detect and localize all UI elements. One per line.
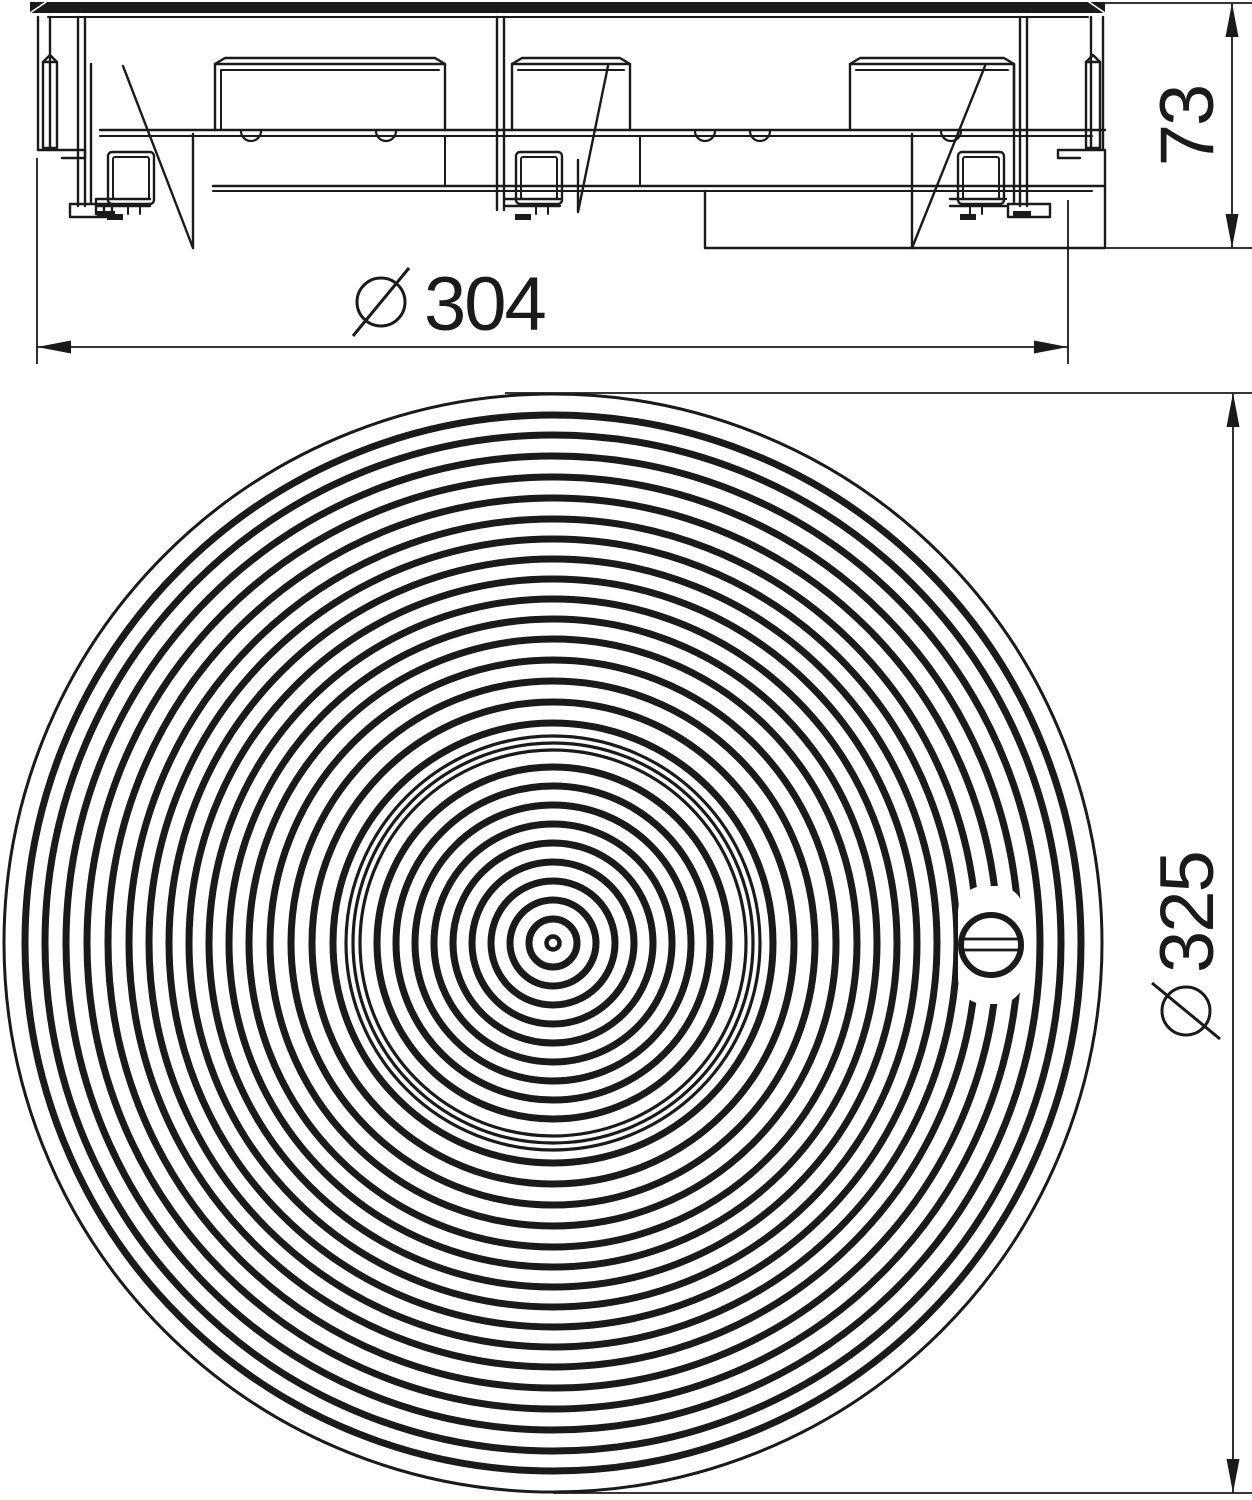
cover-ring (169, 559, 937, 1327)
dimension-label-cover: 325 (1145, 852, 1230, 973)
cover-rings (4, 394, 1102, 1492)
cover-ring (45, 435, 1061, 1451)
cover-ring (453, 843, 653, 1043)
technical-drawing-page: 73 304 325 (0, 0, 1252, 1500)
cover-ring (229, 619, 877, 1267)
flange-plate (30, 2, 1105, 17)
dimension-label-flange: 304 (424, 262, 546, 347)
cover-ring (312, 702, 794, 1184)
arrowhead-up (1227, 393, 1240, 427)
screw-head (961, 915, 1021, 975)
drawing-canvas: 73 304 325 (0, 0, 1252, 1500)
cover-ring (510, 900, 596, 986)
arrowhead-down (1226, 214, 1239, 248)
right-upper-tray (850, 58, 1014, 130)
cover-ring (396, 786, 710, 1100)
center-clip-tower (497, 17, 630, 220)
dimension-label-height: 73 (1145, 86, 1230, 167)
arrowhead-left (37, 341, 71, 354)
cover-screw (958, 886, 1024, 1004)
arrowhead-up (1226, 3, 1239, 37)
cover-ring (108, 498, 998, 1388)
cover-ring (346, 736, 760, 1150)
arrowhead-down (1227, 1459, 1240, 1493)
dimension-height: 73 (1008, 3, 1252, 248)
cover-ring (189, 579, 917, 1307)
left-upper-tray (215, 58, 445, 130)
diameter-symbol (1152, 983, 1220, 1039)
arrowhead-right (1034, 341, 1068, 354)
cover-ring (472, 862, 634, 1024)
dimension-flange-diameter: 304 (37, 158, 1068, 364)
horizontal-rails (100, 130, 1105, 191)
right-outer-wall (705, 17, 1105, 248)
rotated-label-group: 325 (1145, 852, 1230, 1039)
cover-ring (291, 681, 815, 1205)
cover-ring (547, 937, 560, 950)
left-latch-block (96, 152, 154, 220)
cover-ring (529, 919, 577, 967)
cover-ring (377, 767, 729, 1119)
side-section-view (30, 2, 1105, 248)
cover-ring (129, 519, 977, 1367)
cover-ring (270, 660, 836, 1226)
cover-ring (249, 639, 857, 1247)
cover-ring (25, 415, 1081, 1471)
diameter-symbol (353, 268, 409, 336)
